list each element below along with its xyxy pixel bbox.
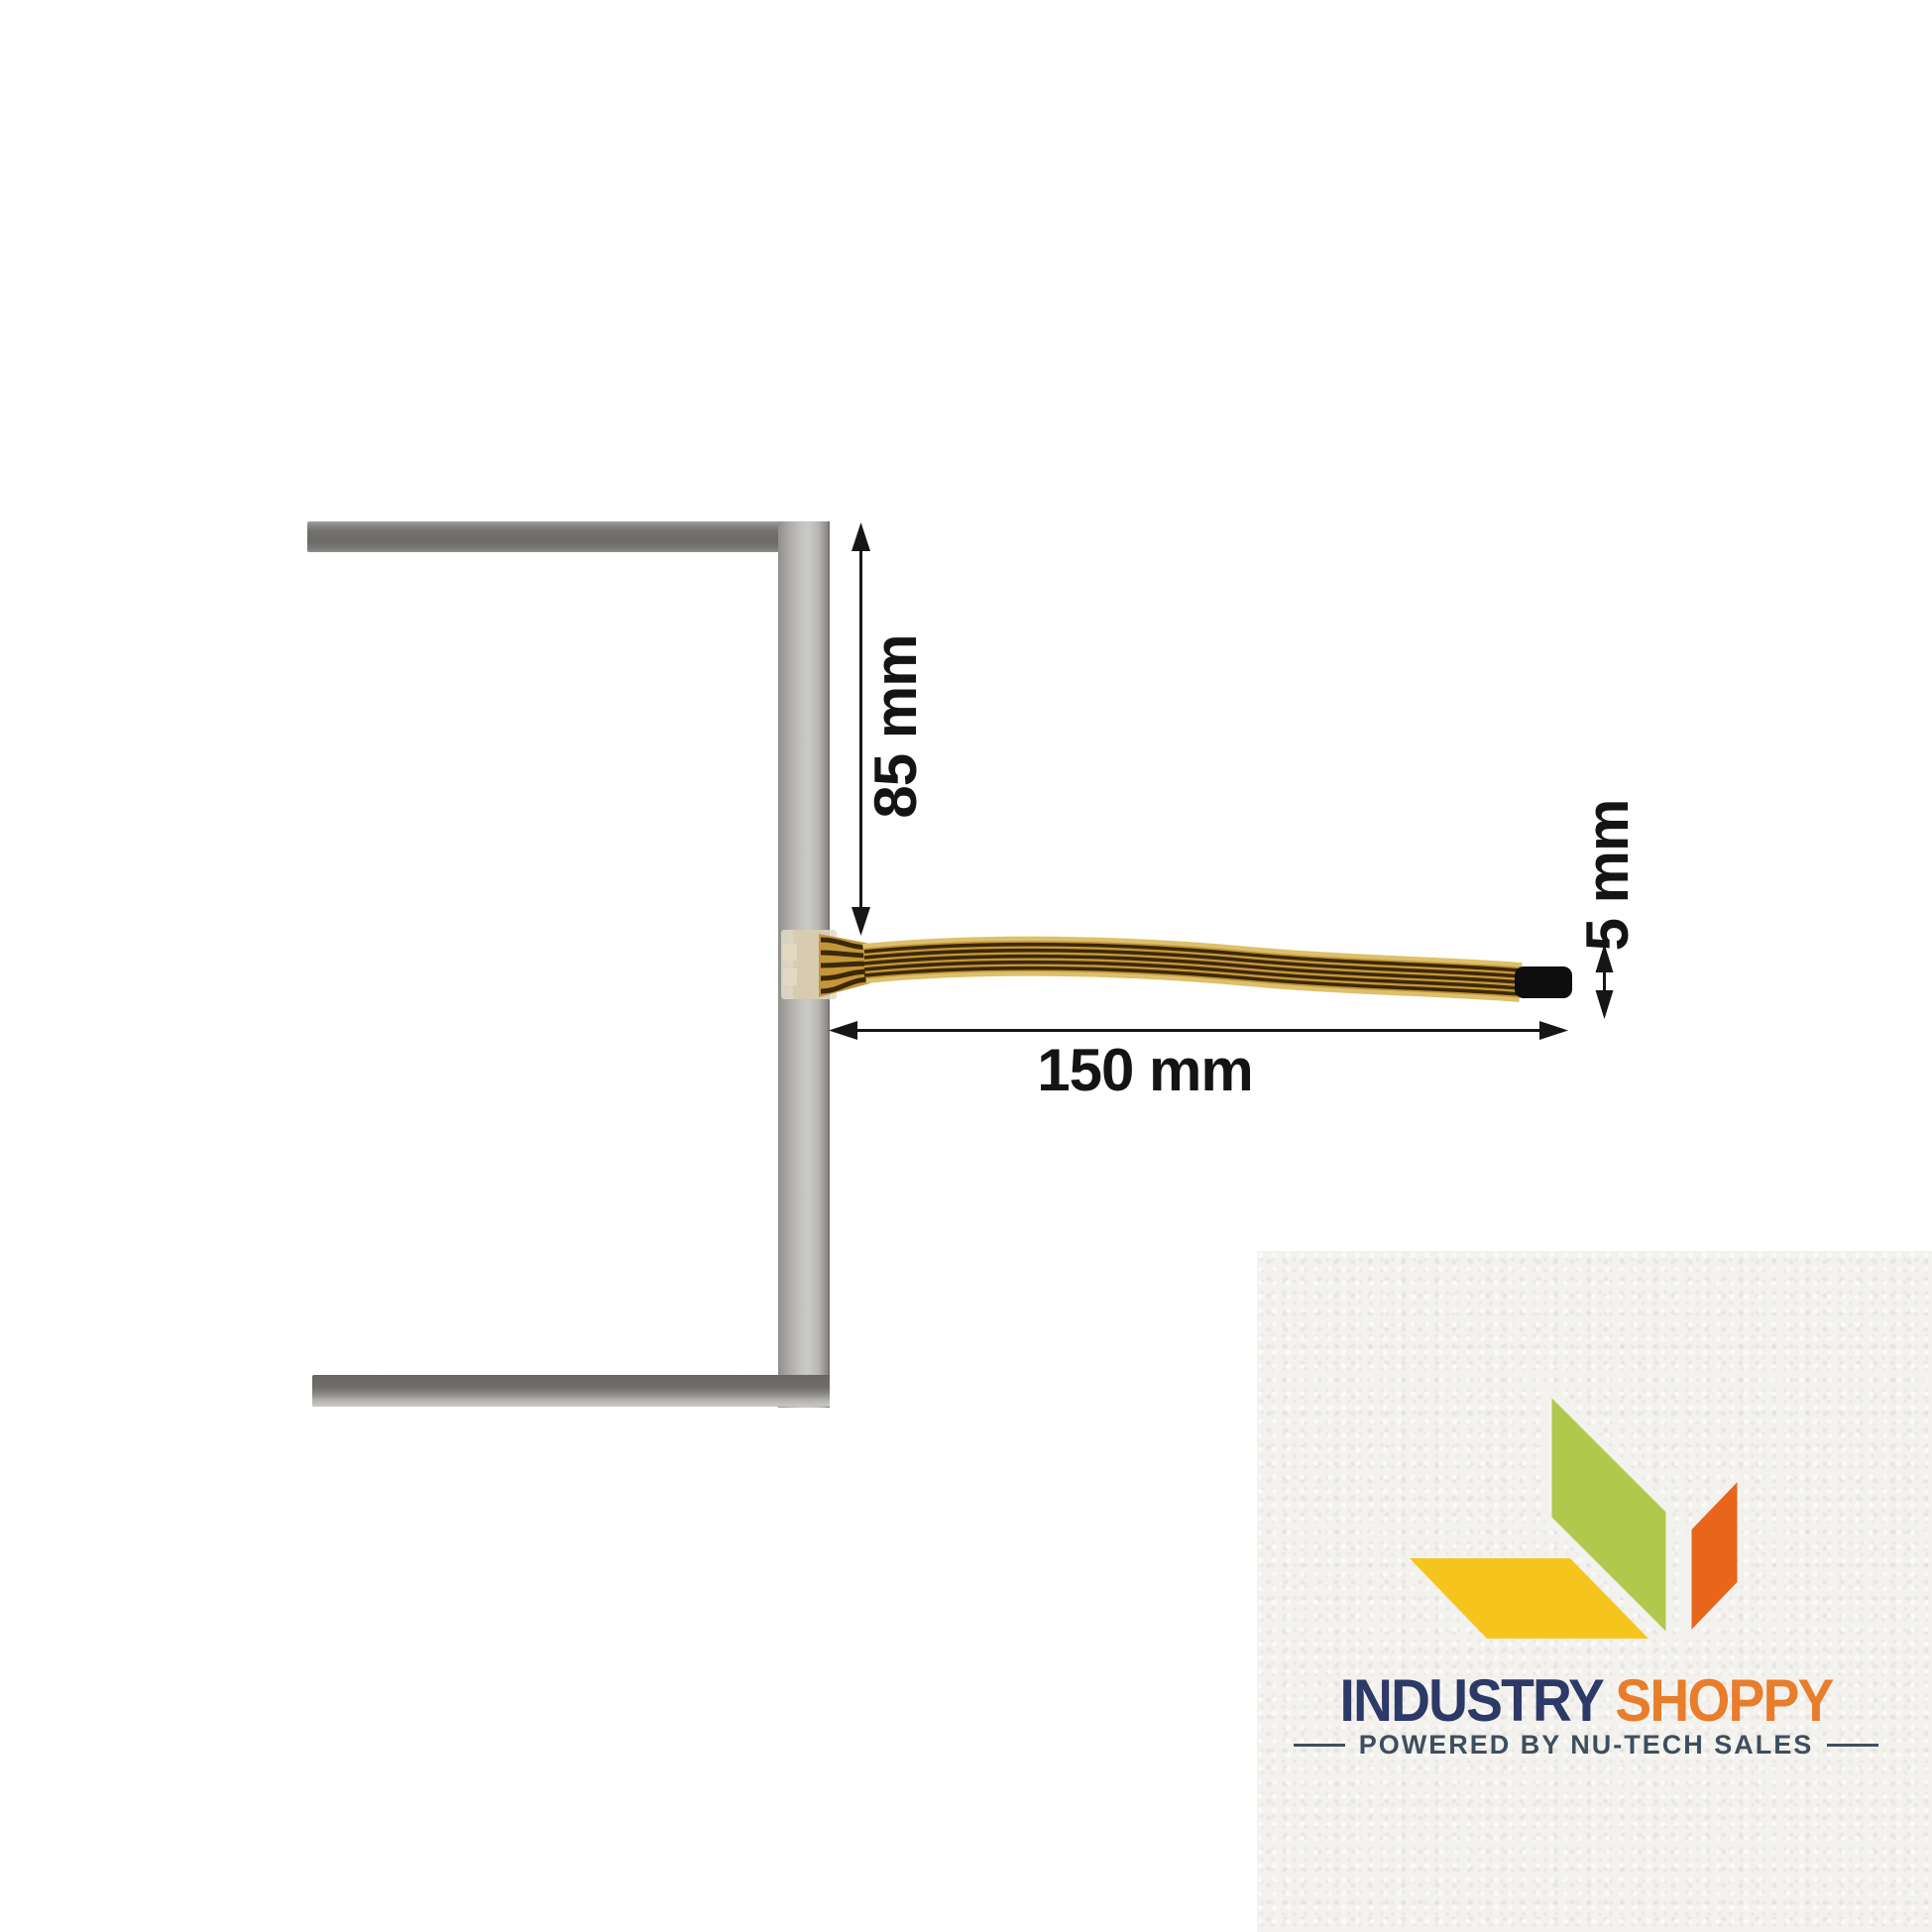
tagline-dash-left: [1294, 1744, 1345, 1747]
arrowhead-left-icon: [829, 1021, 857, 1040]
brand-name-secondary: SHOPPY: [1615, 1667, 1832, 1734]
connector-tab: [783, 944, 797, 961]
brand-wordmark: INDUSTRY SHOPPY: [1312, 1669, 1860, 1733]
brand-tagline: POWERED BY NU-TECH SALES: [1359, 1730, 1814, 1761]
logo-leaf-orange-icon: [1689, 1476, 1740, 1636]
flex-cable: [783, 930, 1572, 999]
brand-tagline-row: POWERED BY NU-TECH SALES: [1289, 1729, 1883, 1761]
diagram-overlay: [0, 0, 1932, 1932]
dimension-thickness-label: 5 mm: [1578, 776, 1636, 974]
arrowhead-right-icon: [1539, 1021, 1568, 1040]
dimension-height-label: 85 mm: [866, 608, 924, 846]
product-image: 85 mm 150 mm 5 mm INDUSTRY SHOPPY POWERE…: [0, 0, 1932, 1932]
brand-logo: [1410, 1390, 1740, 1640]
dimension-length-label: 150 mm: [1016, 1041, 1274, 1098]
brand-name-primary: INDUSTRY: [1340, 1667, 1602, 1734]
arrowhead-down-icon: [852, 907, 870, 936]
arrowhead-down-icon: [1596, 990, 1614, 1019]
arrowhead-up-icon: [852, 522, 870, 551]
cable-tip: [1515, 966, 1572, 998]
connector-tab: [783, 968, 797, 985]
tagline-dash-right: [1827, 1744, 1878, 1747]
